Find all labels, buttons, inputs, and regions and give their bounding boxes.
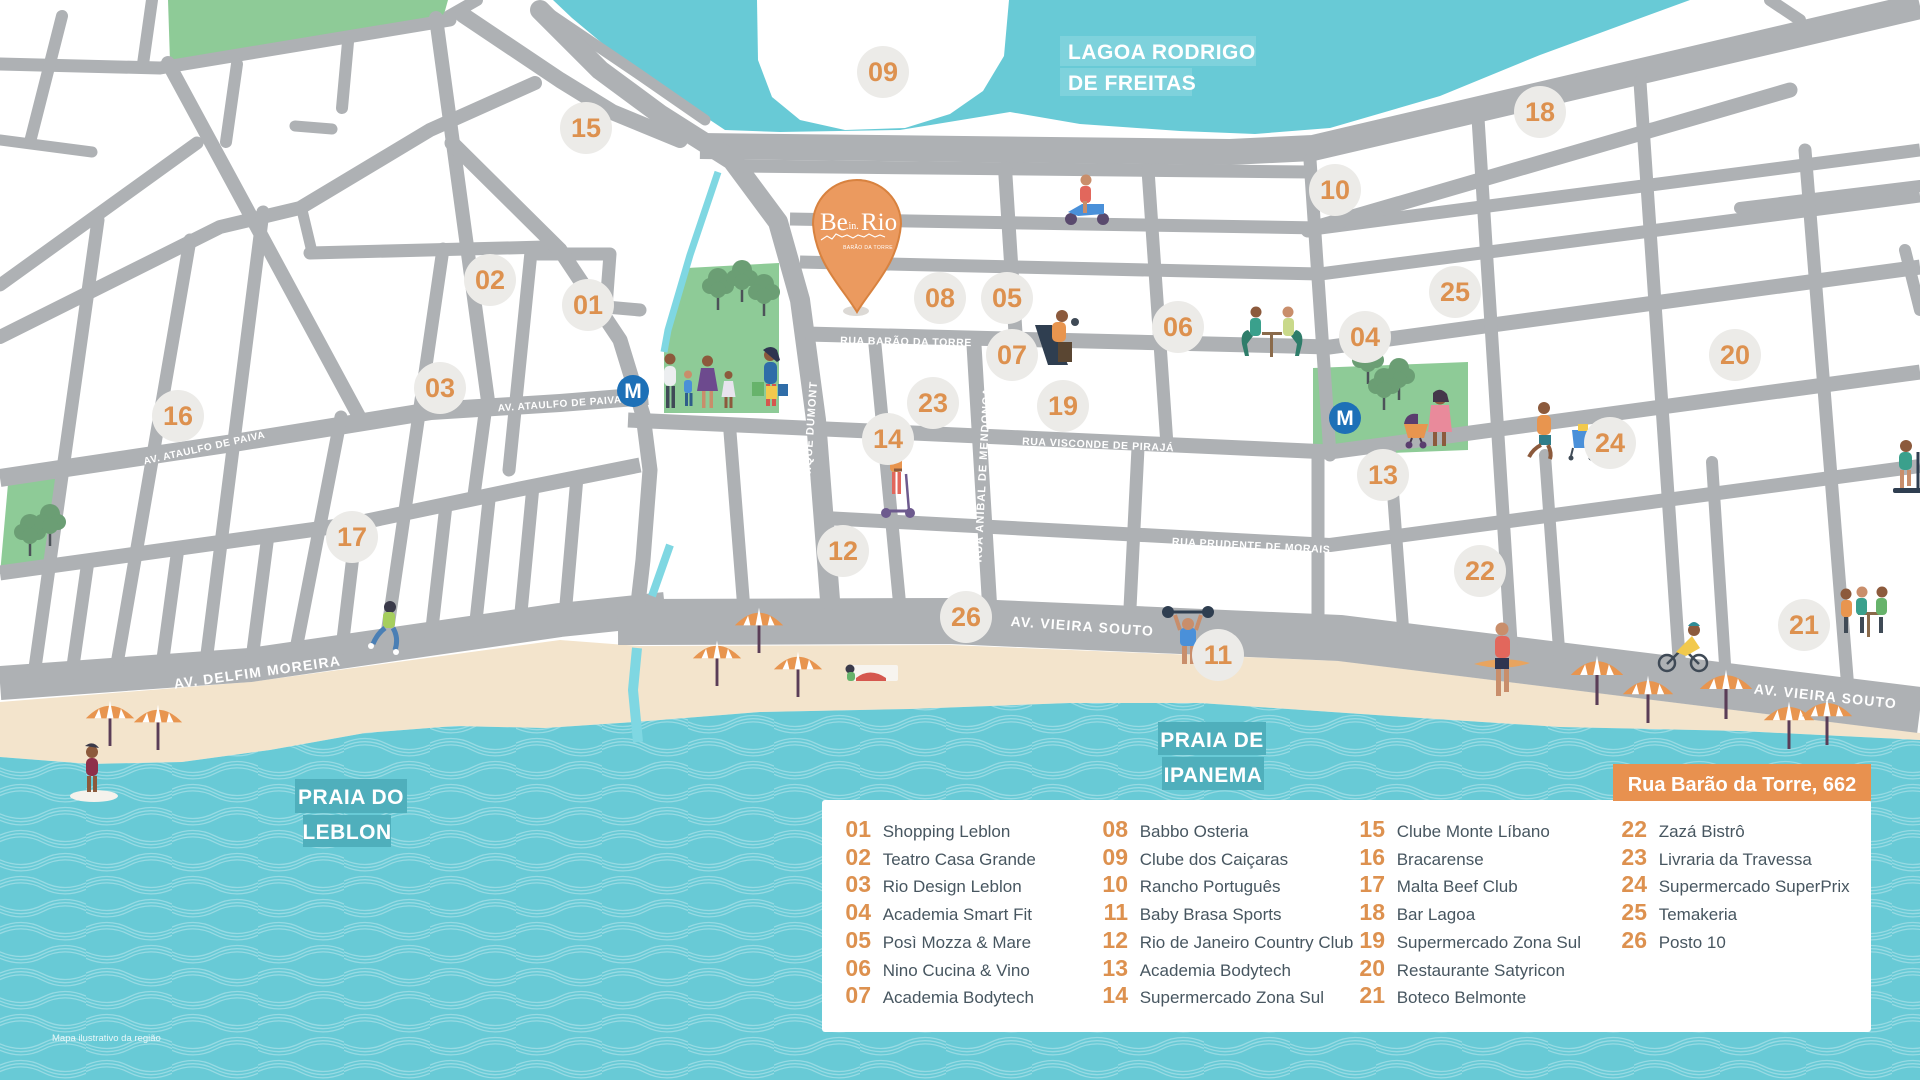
svg-text:09: 09 (868, 57, 898, 87)
svg-text:Nino Cucina & Vino: Nino Cucina & Vino (878, 961, 1030, 980)
svg-text:12: 12 (1102, 927, 1128, 953)
svg-text:07: 07 (845, 982, 871, 1008)
svg-text:13: 13 (1368, 460, 1398, 490)
svg-text:17: 17 (337, 522, 367, 552)
svg-text:Clube Monte Líbano: Clube Monte Líbano (1392, 822, 1550, 841)
svg-text:LAGOA RODRIGO: LAGOA RODRIGO (1068, 41, 1256, 64)
svg-text:04: 04 (1350, 322, 1380, 352)
svg-text:18: 18 (1359, 899, 1385, 925)
svg-text:02: 02 (475, 265, 505, 295)
svg-text:07: 07 (997, 340, 1027, 370)
svg-text:25: 25 (1621, 899, 1647, 925)
svg-text:Boteco Belmonte: Boteco Belmonte (1392, 988, 1526, 1007)
svg-text:Rua Barão da Torre, 662: Rua Barão da Torre, 662 (1628, 774, 1857, 796)
svg-text:10: 10 (1102, 871, 1128, 897)
svg-text:Zazá Bistrô: Zazá Bistrô (1654, 822, 1745, 841)
svg-text:12: 12 (828, 536, 858, 566)
svg-text:Supermercado Zona Sul: Supermercado Zona Sul (1135, 988, 1324, 1007)
svg-text:Temakeria: Temakeria (1654, 905, 1738, 924)
svg-text:05: 05 (845, 927, 871, 953)
svg-text:Supermercado Zona Sul: Supermercado Zona Sul (1392, 933, 1581, 952)
svg-text:IPANEMA: IPANEMA (1164, 764, 1263, 787)
svg-text:26: 26 (951, 602, 981, 632)
svg-text:20: 20 (1720, 340, 1750, 370)
svg-text:Academia Bodytech: Academia Bodytech (878, 988, 1034, 1007)
svg-text:Baby Brasa Sports: Baby Brasa Sports (1135, 905, 1281, 924)
svg-text:Restaurante Satyricon: Restaurante Satyricon (1392, 961, 1565, 980)
svg-text:Rio Design Leblon: Rio Design Leblon (878, 877, 1022, 896)
svg-text:RUA BARÃO DA TORRE: RUA BARÃO DA TORRE (840, 334, 972, 349)
svg-text:Rancho Português: Rancho Português (1135, 877, 1281, 896)
svg-text:13: 13 (1102, 955, 1128, 981)
svg-text:23: 23 (918, 388, 948, 418)
svg-text:Clube dos Caiçaras: Clube dos Caiçaras (1135, 850, 1288, 869)
svg-text:17: 17 (1359, 871, 1385, 897)
svg-text:23: 23 (1621, 844, 1647, 870)
svg-text:24: 24 (1621, 871, 1647, 897)
svg-text:22: 22 (1465, 556, 1495, 586)
svg-text:.in.: .in. (846, 221, 859, 232)
svg-text:Livraria da Travessa: Livraria da Travessa (1654, 850, 1812, 869)
svg-text:06: 06 (1163, 312, 1193, 342)
svg-text:16: 16 (1359, 844, 1385, 870)
svg-text:Mapa ilustrativo da região: Mapa ilustrativo da região (52, 1033, 161, 1044)
svg-text:14: 14 (873, 424, 903, 454)
svg-text:06: 06 (845, 955, 871, 981)
svg-text:19: 19 (1048, 391, 1078, 421)
svg-text:LEBLON: LEBLON (302, 821, 391, 844)
svg-text:Posì Mozza & Mare: Posì Mozza & Mare (878, 933, 1031, 952)
svg-text:BARÃO DA TORRE: BARÃO DA TORRE (843, 244, 893, 251)
svg-text:11: 11 (1104, 899, 1129, 925)
svg-text:05: 05 (992, 283, 1022, 313)
svg-text:Bar Lagoa: Bar Lagoa (1392, 905, 1476, 924)
svg-text:01: 01 (573, 290, 603, 320)
svg-text:08: 08 (1102, 816, 1128, 842)
svg-text:Bracarense: Bracarense (1392, 850, 1484, 869)
svg-text:15: 15 (571, 113, 601, 143)
svg-text:PRAIA DO: PRAIA DO (298, 786, 404, 809)
svg-text:08: 08 (925, 283, 955, 313)
svg-text:19: 19 (1359, 927, 1385, 953)
svg-text:14: 14 (1102, 982, 1128, 1008)
svg-text:26: 26 (1621, 927, 1647, 953)
svg-text:15: 15 (1359, 816, 1385, 842)
svg-text:18: 18 (1525, 97, 1555, 127)
svg-text:Shopping Leblon: Shopping Leblon (878, 822, 1010, 841)
svg-text:04: 04 (845, 899, 871, 925)
svg-text:21: 21 (1789, 610, 1819, 640)
svg-text:Malta Beef Club: Malta Beef Club (1392, 877, 1518, 896)
svg-text:16: 16 (163, 401, 193, 431)
svg-text:22: 22 (1621, 816, 1647, 842)
svg-text:03: 03 (425, 373, 455, 403)
svg-text:Academia Bodytech: Academia Bodytech (1135, 961, 1291, 980)
svg-text:Babbo Osteria: Babbo Osteria (1135, 822, 1249, 841)
svg-text:Rio: Rio (861, 209, 897, 236)
svg-text:Be: Be (820, 209, 848, 236)
svg-text:21: 21 (1359, 982, 1385, 1008)
svg-text:PRAIA DE: PRAIA DE (1160, 729, 1264, 752)
svg-text:Academia Smart Fit: Academia Smart Fit (878, 905, 1032, 924)
svg-text:Supermercado SuperPrix: Supermercado SuperPrix (1654, 877, 1850, 896)
svg-text:Teatro Casa Grande: Teatro Casa Grande (878, 850, 1036, 869)
svg-text:09: 09 (1102, 844, 1128, 870)
svg-text:01: 01 (845, 816, 871, 842)
svg-text:Posto 10: Posto 10 (1654, 933, 1726, 952)
svg-text:10: 10 (1320, 175, 1350, 205)
svg-text:Rio de Janeiro Country Club: Rio de Janeiro Country Club (1135, 933, 1353, 952)
svg-text:24: 24 (1595, 428, 1625, 458)
svg-text:DE FREITAS: DE FREITAS (1068, 72, 1196, 95)
svg-text:25: 25 (1440, 277, 1470, 307)
svg-text:20: 20 (1359, 955, 1385, 981)
svg-text:02: 02 (845, 844, 871, 870)
svg-text:03: 03 (845, 871, 871, 897)
svg-text:11: 11 (1204, 640, 1233, 670)
